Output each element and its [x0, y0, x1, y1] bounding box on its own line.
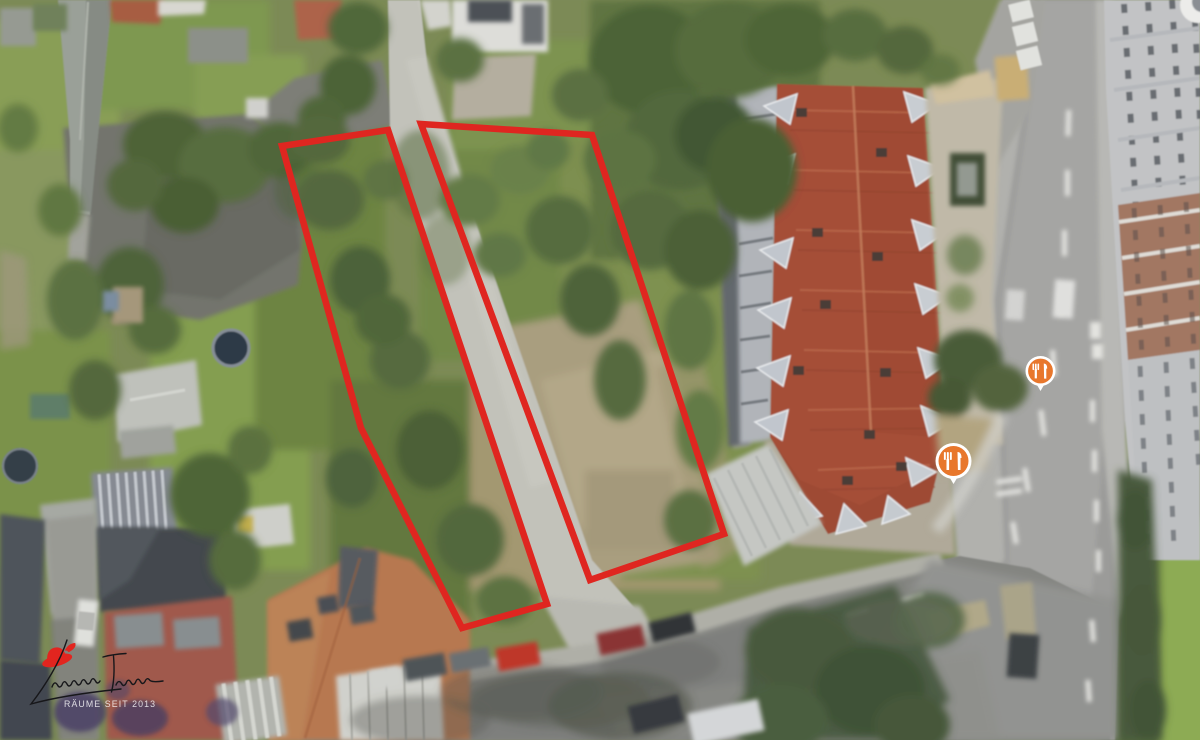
svg-text:RÄUME SEIT 2013: RÄUME SEIT 2013	[64, 699, 156, 709]
